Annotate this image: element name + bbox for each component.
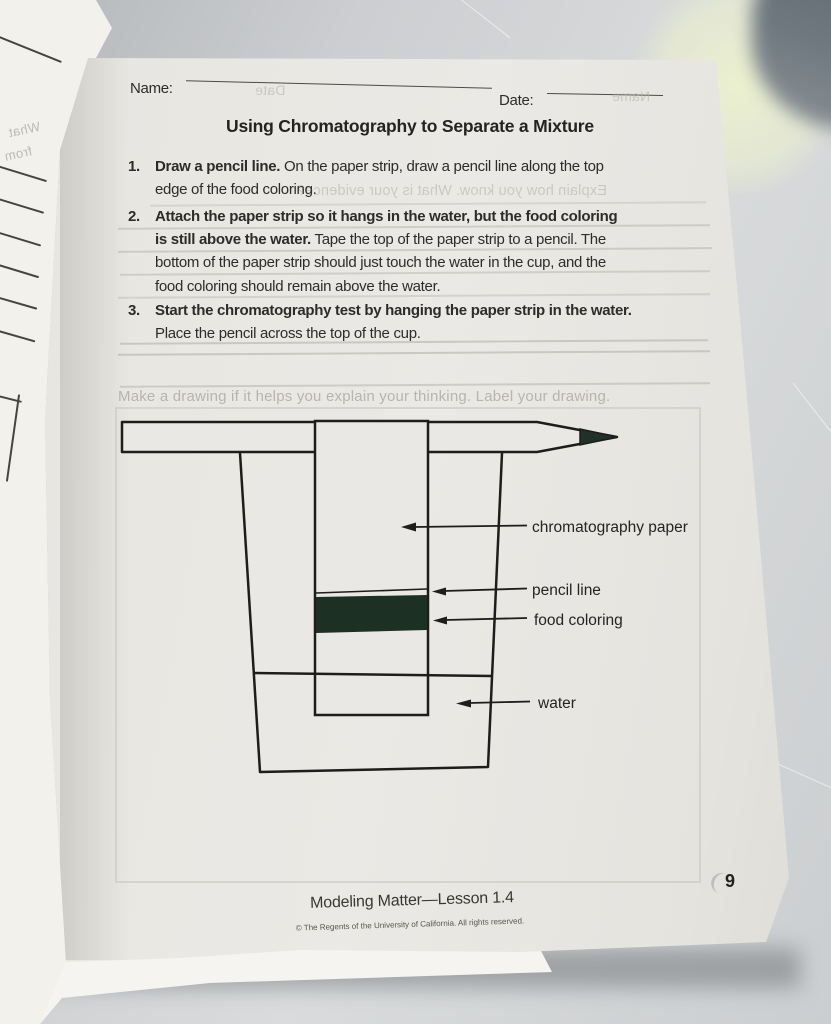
- bleed-line: [118, 350, 710, 355]
- instruction-number: 3.: [128, 299, 140, 322]
- footer-copyright: © The Regents of the University of Calif…: [240, 915, 580, 935]
- instruction-item-1: 1. Draw a pencil line. On the paper stri…: [128, 155, 633, 201]
- worksheet-page: Name: Date Date: Name Using Chromatograp…: [0, 0, 831, 1024]
- curl-ruled-line: [0, 196, 44, 214]
- pencil-tip: [580, 429, 617, 445]
- curl-box-corner-v: [6, 394, 20, 481]
- paper-strip: [315, 421, 428, 715]
- arrow-line-paper: [414, 526, 527, 528]
- bleed-through-date: Date: [255, 82, 285, 98]
- page-title: Using Chromatography to Separate a Mixtu…: [115, 116, 705, 137]
- table-scratch: [439, 0, 511, 39]
- bleed-through-name: Name: [612, 88, 650, 104]
- curl-ruled-line: [0, 328, 35, 343]
- curl-ghost-word: from: [3, 143, 34, 163]
- instruction-number: 1.: [128, 155, 140, 178]
- table-scratch: [793, 383, 831, 478]
- name-blank-line: [186, 80, 492, 88]
- arrowhead-food-coloring: [433, 617, 447, 625]
- instruction-number: 2.: [128, 205, 140, 228]
- curl-ruled-line: [0, 229, 41, 246]
- footer-lesson-title: Modeling Matter—Lesson 1.4: [262, 888, 562, 914]
- curl-ruled-line: [0, 294, 37, 309]
- bleed-line: [120, 382, 710, 387]
- instruction-text: Start the chromatography test by hanging…: [155, 299, 633, 345]
- chromatography-diagram: chromatography paper pencil line food co…: [115, 406, 710, 886]
- arrowhead-water: [456, 700, 471, 708]
- water-level-line: [254, 673, 492, 676]
- arrow-line-food-coloring: [445, 618, 527, 620]
- curl-ghost-word: What: [7, 119, 42, 140]
- curl-ruled-line: [0, 164, 47, 182]
- label-water: water: [537, 695, 576, 712]
- arrow-line-pencil-line: [444, 589, 527, 592]
- instruction-text: Draw a pencil line. On the paper strip, …: [155, 155, 633, 201]
- instruction-text: Attach the paper strip so it hangs in th…: [155, 205, 633, 298]
- instruction-item-3: 3. Start the chromatography test by hang…: [128, 299, 633, 345]
- label-chromatography-paper: chromatography paper: [532, 519, 688, 536]
- date-label: Date:: [499, 92, 533, 109]
- arrow-line-water: [469, 702, 530, 704]
- name-label: Name:: [130, 80, 173, 97]
- instruction-item-2: 2. Attach the paper strip so it hangs in…: [128, 205, 633, 298]
- arrowhead-pencil-line: [432, 588, 446, 596]
- ghost-drawing-prompt: Make a drawing if it helps you explain y…: [118, 388, 610, 405]
- label-food-coloring: food coloring: [534, 612, 623, 629]
- curl-ruled-line: [0, 262, 39, 279]
- label-pencil-line: pencil line: [532, 582, 601, 599]
- photo-of-workbook: What from Name: Date Date: Name Using Ch…: [0, 0, 831, 1024]
- food-coloring-band: [316, 595, 427, 633]
- page-number: 9: [725, 871, 735, 892]
- curl-ruled-line: [0, 35, 62, 63]
